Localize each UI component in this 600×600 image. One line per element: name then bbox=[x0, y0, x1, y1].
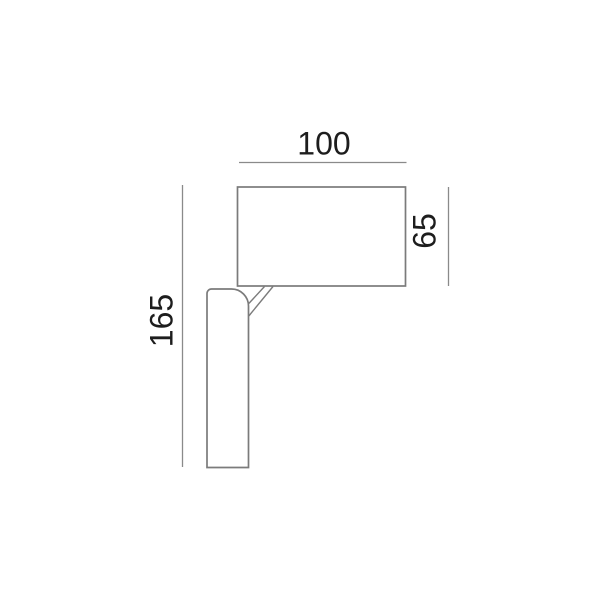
lamp-stem-outline bbox=[207, 289, 249, 468]
dimension-labels-group: 100 165 65 bbox=[144, 126, 443, 348]
bracket-line-upper bbox=[249, 287, 265, 304]
head-height-dimension-label: 65 bbox=[407, 213, 443, 249]
dimension-drawing-canvas: 100 165 65 bbox=[0, 0, 600, 600]
dimension-lines-group bbox=[183, 163, 449, 468]
lamp-outline-group bbox=[207, 187, 406, 468]
lamp-dimension-drawing: 100 165 65 bbox=[0, 0, 600, 600]
width-dimension-label: 100 bbox=[297, 126, 350, 162]
total-height-dimension-label: 165 bbox=[144, 294, 180, 347]
lamp-head-outline bbox=[238, 187, 406, 286]
